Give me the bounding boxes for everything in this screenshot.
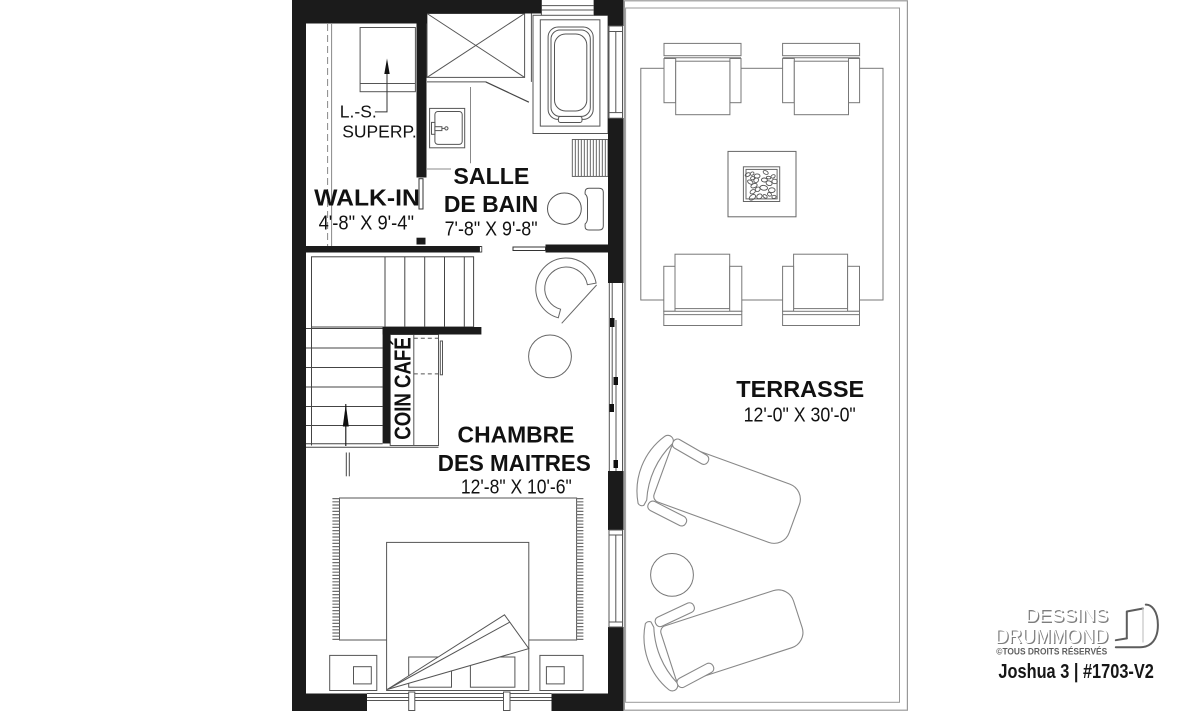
svg-text:DE BAIN: DE BAIN xyxy=(444,191,538,217)
svg-text:SUPERP.: SUPERP. xyxy=(342,122,417,142)
svg-text:©TOUS DROITS RÉSERVÉS: ©TOUS DROITS RÉSERVÉS xyxy=(996,647,1107,658)
svg-text:DESSINS: DESSINS xyxy=(1025,605,1108,626)
svg-text:12'-0" X 30'-0": 12'-0" X 30'-0" xyxy=(744,403,856,426)
svg-text:WALK-IN: WALK-IN xyxy=(314,185,420,211)
svg-text:12'-8" X 10'-6": 12'-8" X 10'-6" xyxy=(461,476,572,499)
svg-text:4'-8" X 9'-4": 4'-8" X 9'-4" xyxy=(319,211,414,234)
svg-text:CHAMBRE: CHAMBRE xyxy=(458,422,575,448)
svg-text:COIN CAFÉ: COIN CAFÉ xyxy=(389,337,416,439)
svg-text:SALLE: SALLE xyxy=(453,163,529,189)
svg-text:TERRASSE: TERRASSE xyxy=(736,376,864,402)
svg-text:L.-S.: L.-S. xyxy=(340,101,377,121)
svg-text:Joshua 3 | #1703-V2: Joshua 3 | #1703-V2 xyxy=(998,661,1154,683)
svg-text:DES MAITRES: DES MAITRES xyxy=(438,450,591,476)
svg-text:7'-8" X 9'-8": 7'-8" X 9'-8" xyxy=(445,217,538,240)
svg-text:DRUMMOND: DRUMMOND xyxy=(995,626,1108,648)
